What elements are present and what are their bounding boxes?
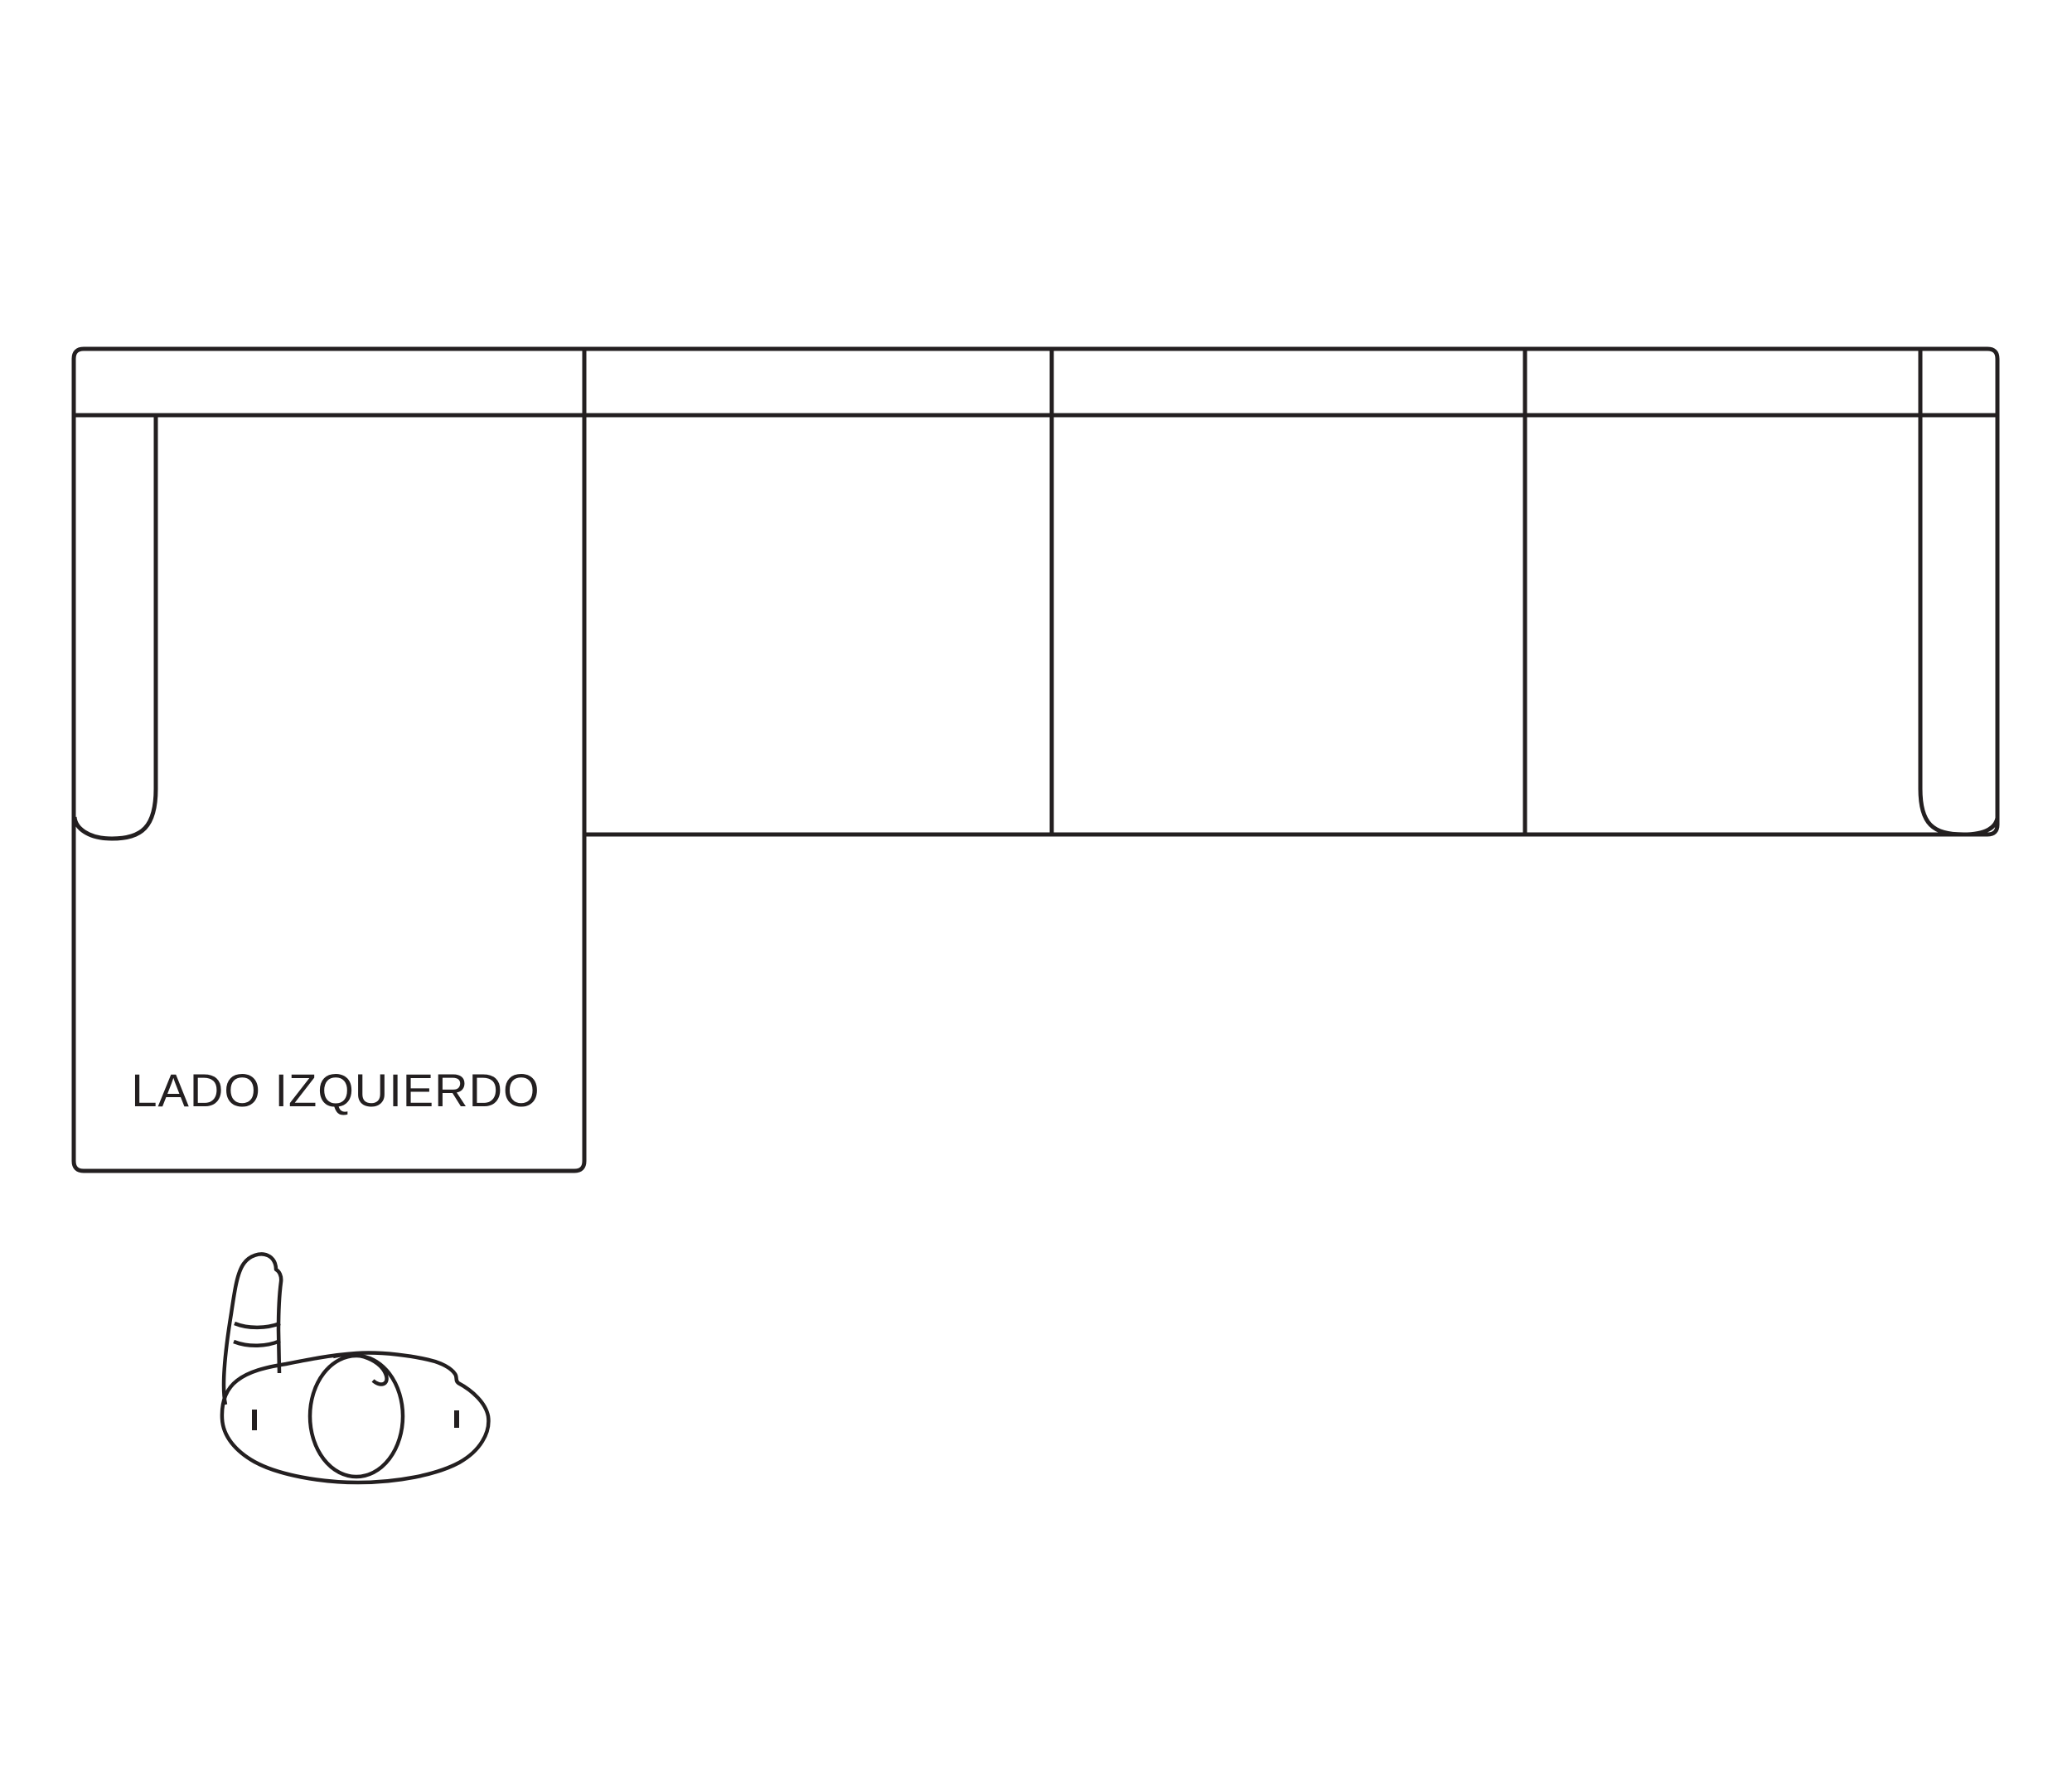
chaise-label: LADO IZQUIERDO: [131, 1066, 540, 1115]
person-wrist-band-lower: [234, 1341, 280, 1346]
person-wrist-band-upper: [235, 1323, 280, 1328]
sofa-floorplan-page: LADO IZQUIERDO: [0, 0, 2072, 1775]
person-head: [310, 1356, 403, 1477]
sofa-outline-group: [74, 349, 1997, 1171]
person-raised-arm: [224, 1254, 281, 1405]
person-top-view-raised-arm-icon: [222, 1254, 489, 1482]
sofa-outer-outline: [74, 349, 1997, 1171]
left-armrest-inner-edge: [75, 415, 156, 839]
sofa-top-view-drawing: [0, 0, 2072, 1775]
right-armrest-inner-edge: [1920, 349, 1997, 834]
person-body-outline: [222, 1353, 489, 1482]
